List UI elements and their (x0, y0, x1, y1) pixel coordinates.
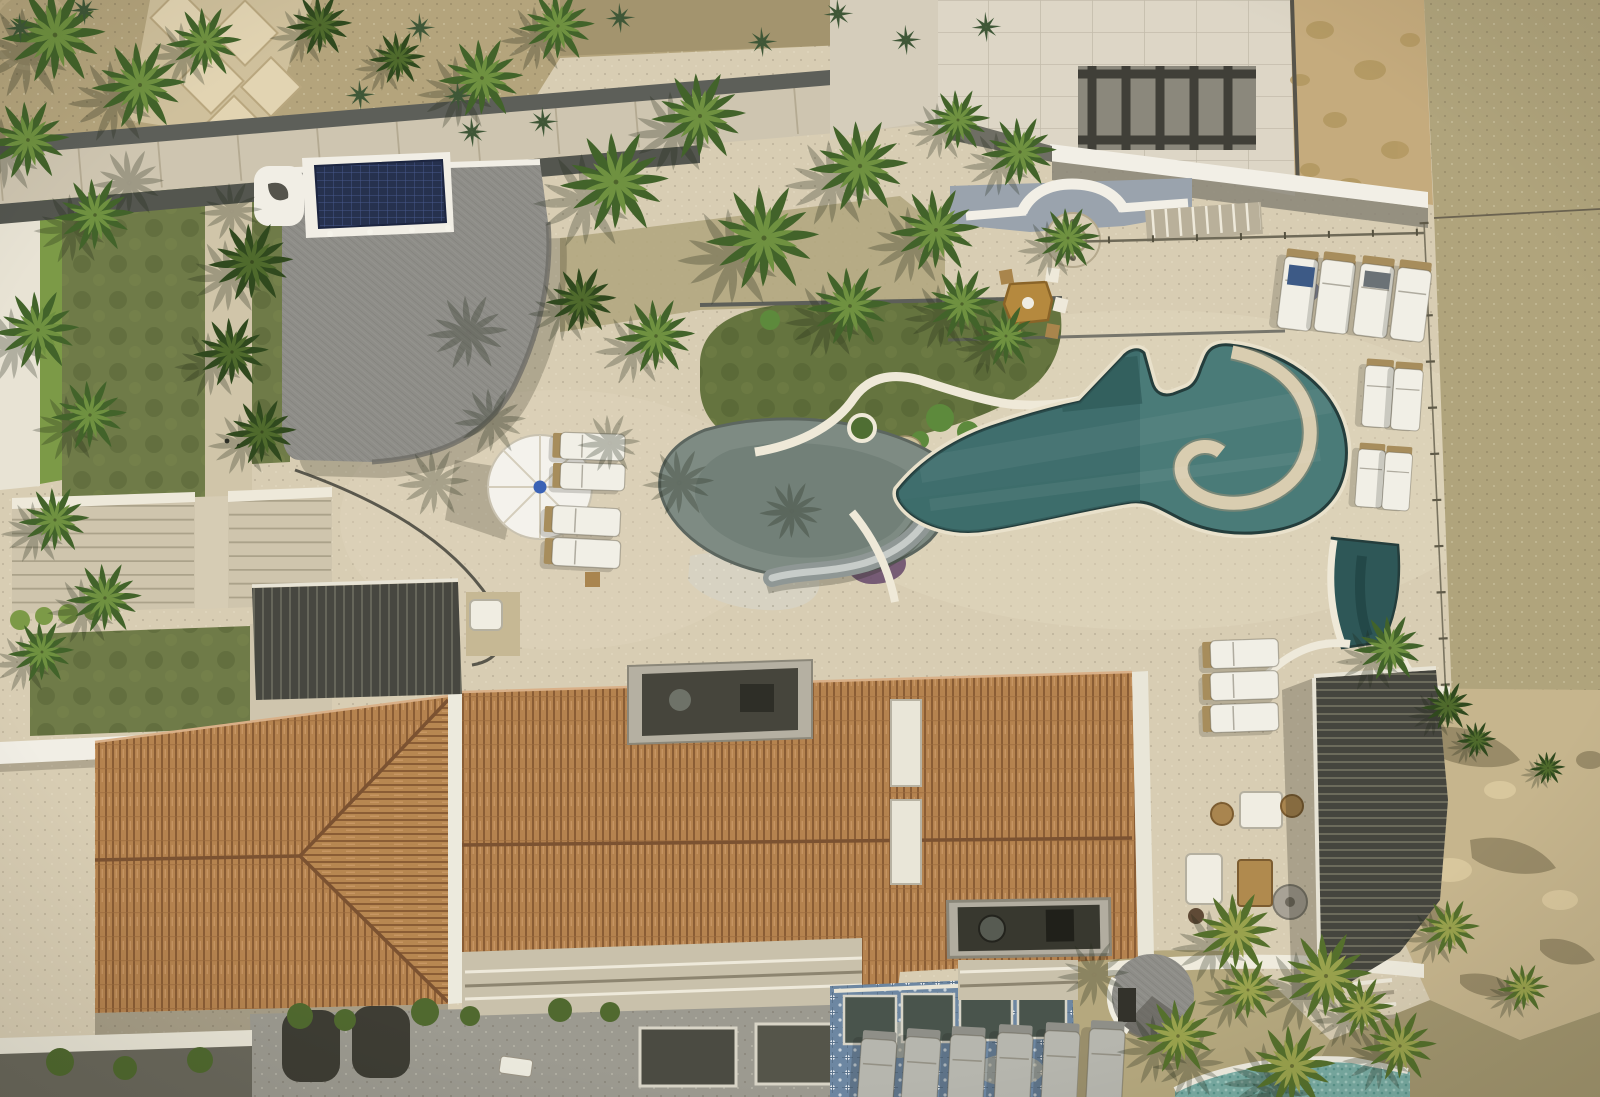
aerial-photo (0, 0, 1600, 1097)
scene (0, 0, 1600, 1097)
vignette (0, 0, 1600, 1097)
